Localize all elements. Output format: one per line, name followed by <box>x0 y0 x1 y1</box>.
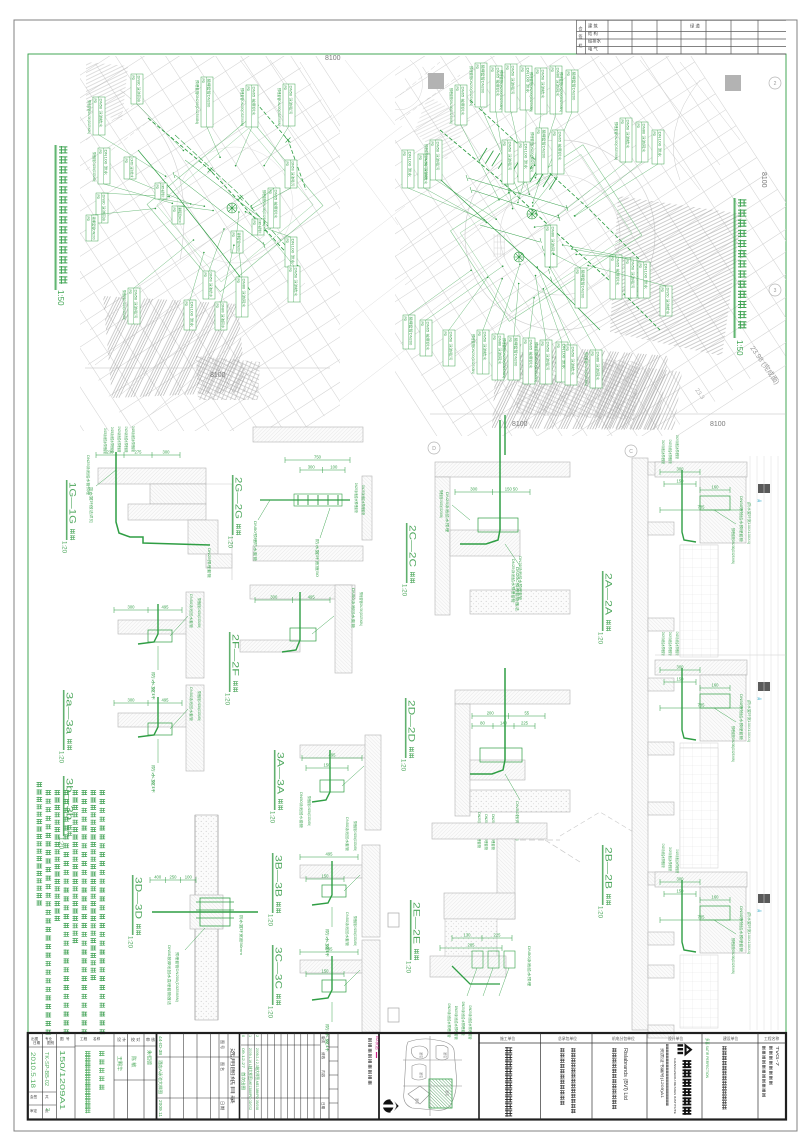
svg-text:陈 敏: 陈 敏 <box>130 1056 137 1067</box>
svg-text:DN100 泄水: DN100 泄水 <box>407 152 412 179</box>
svg-text:8100: 8100 <box>325 55 341 62</box>
svg-text:DN50 泳池给水: DN50 泳池给水 <box>208 273 213 299</box>
svg-text:495: 495 <box>162 698 170 703</box>
svg-text:预埋套管DN200(D325X8N): 预埋套管DN200(D325X8N) <box>731 726 736 762</box>
svg-text:300: 300 <box>128 698 136 703</box>
svg-text:DN25泳池给水预埋套管: DN25泳池给水预埋套管 <box>675 849 680 873</box>
svg-text:200: 200 <box>487 711 495 716</box>
svg-text:DN50泳池给水预埋套管: DN50泳池给水预埋套管 <box>739 906 744 953</box>
svg-text:DN50泳池回水套管: DN50泳池回水套管 <box>345 817 350 852</box>
svg-text:日期: 日期 <box>33 1040 41 1045</box>
svg-text:DN50 泳池给水: DN50 泳池给水 <box>570 347 575 377</box>
svg-text:PD: PD <box>285 239 289 244</box>
svg-text:PD: PD <box>552 132 556 137</box>
svg-text:预埋套管DN200(D325X8N): 预埋套管DN200(D325X8N) <box>195 80 200 124</box>
svg-text:图 名: 图 名 <box>220 1062 226 1071</box>
svg-text:2: 2 <box>774 81 777 87</box>
svg-text:DN25泳池给水预埋套管: DN25泳池给水预埋套管 <box>124 427 129 453</box>
svg-text:PD: PD <box>545 227 549 232</box>
svg-text:预埋套管DN200(D325X8N): 预埋套管DN200(D325X8N) <box>731 528 736 564</box>
svg-text:2B—2B: 2B—2B <box>604 847 614 889</box>
svg-text:DN100 泄水: DN100 泄水 <box>103 150 108 177</box>
svg-text:工程名称: 工程名称 <box>764 1036 779 1041</box>
svg-text:预埋套管DN200(D325X8N): 预埋套管DN200(D325X8N) <box>353 916 358 946</box>
svg-text:1:20: 1:20 <box>405 961 412 974</box>
svg-text:2: 2 <box>255 1035 259 1037</box>
svg-text:防水翼环: 防水翼环 <box>151 672 156 701</box>
svg-text:300: 300 <box>677 665 685 670</box>
svg-text:PD: PD <box>475 65 479 70</box>
svg-text:预埋套管DN200(D325X8N): 预埋套管DN200(D325X8N) <box>122 290 127 320</box>
svg-text:DN25泳池给水预埋套管: DN25泳池给水预埋套管 <box>131 426 136 452</box>
svg-text:酒店A泳池大样图: 酒店A泳池大样图 <box>157 1060 164 1094</box>
svg-text:DN50 泳池吸污: DN50 泳池吸污 <box>507 142 512 172</box>
svg-text:DN50 泳池吸污: DN50 泳池吸污 <box>288 86 293 116</box>
svg-text:DN25泳池给水预埋套管: DN25泳池给水预埋套管 <box>468 1006 473 1041</box>
svg-text:预埋套管DN200(D325X8N): 预埋套管DN200(D325X8N) <box>471 334 476 374</box>
svg-text:GUANGZHOU DESIGN INSTITUTE: GUANGZHOU DESIGN INSTITUTE <box>673 1058 677 1114</box>
svg-text:PD: PD <box>172 208 176 213</box>
svg-text:PD: PD <box>556 344 560 349</box>
svg-text:1G—1G: 1G—1G <box>68 482 78 524</box>
svg-text:DN50按摩池回水直埋套管做法: DN50按摩池回水直埋套管做法 <box>167 945 172 1006</box>
svg-text:DN80 泳池回水: DN80 泳池回水 <box>641 124 646 154</box>
svg-text:2009.2.4 2,3轴大样图,ME1389/PD 05/: 2009.2.4 2,3轴大样图,ME1389/PD 05/008 <box>255 1048 260 1110</box>
svg-text:预埋套管DN200: 预埋套管DN200 <box>480 65 485 94</box>
svg-text:PD: PD <box>523 340 527 345</box>
svg-text:DN25预埋套管: DN25预埋套管 <box>207 548 212 579</box>
svg-text:PD: PD <box>430 142 434 147</box>
svg-text:495: 495 <box>326 852 334 857</box>
svg-text:DN25泳池给水预埋套管: DN25泳池给水预埋套管 <box>117 426 122 452</box>
svg-text:785: 785 <box>698 915 706 920</box>
svg-text:DN50 泳池吸污: DN50 泳池吸污 <box>290 162 295 188</box>
svg-text:预埋套管DN200(D325X8N): 预埋套管DN200(D325X8N) <box>449 88 454 124</box>
svg-text:工程: 工程 <box>80 1036 88 1041</box>
svg-text:DN50泳池给水预埋套管: DN50泳池给水预埋套管 <box>739 694 744 741</box>
svg-text:100: 100 <box>330 465 338 470</box>
svg-text:DN50泳池回水套管: DN50泳池回水套管 <box>189 594 194 629</box>
svg-text:预埋套管DN200(D325X8N): 预埋套管DN200(D325X8N) <box>359 592 364 626</box>
svg-text:DN50 泳池给水: DN50 泳池给水 <box>98 99 103 129</box>
svg-text:DN80 泳池回水: DN80 泳池回水 <box>136 76 141 104</box>
svg-text:300: 300 <box>677 467 685 472</box>
svg-text:资质证书编号(1209)A1: 资质证书编号(1209)A1 <box>660 1048 665 1098</box>
svg-text:会: 会 <box>579 25 583 31</box>
svg-text:预埋套管DN200(D325X8N): 预埋套管DN200(D325X8N) <box>530 132 535 172</box>
svg-text:防水翼环: 防水翼环 <box>325 929 330 958</box>
svg-text:预埋套管DN200: 预埋套管DN200 <box>571 72 576 101</box>
svg-text:王赐华: 王赐华 <box>116 1056 123 1071</box>
svg-text:160: 160 <box>712 895 720 900</box>
svg-text:44-ID-38: 44-ID-38 <box>158 1036 163 1056</box>
svg-text:250: 250 <box>170 875 178 880</box>
svg-text:选用图纸目录: 选用图纸目录 <box>229 1048 236 1105</box>
svg-text:DN50泳池回水套管: DN50泳池回水套管 <box>345 912 350 947</box>
svg-text:预埋套管DN200: 预埋套管DN200 <box>513 338 518 367</box>
svg-text:DN50 泳池吸污: DN50 泳池吸污 <box>510 66 515 96</box>
svg-text:2009.11: 2009.11 <box>158 1100 163 1118</box>
svg-text:名称: 名称 <box>93 1036 101 1041</box>
svg-text:DN25泳池给水预埋套管: DN25泳池给水预埋套管 <box>361 485 366 516</box>
svg-text:预埋套管DN200(D325X8N): 预埋套管DN200(D325X8N) <box>469 66 474 106</box>
svg-text:495: 495 <box>308 595 316 600</box>
svg-text:PD: PD <box>505 66 509 71</box>
svg-text:DN25泳池给水预埋套管: DN25泳池给水预埋套管 <box>110 427 115 453</box>
svg-text:酒店: 酒店 <box>415 1098 420 1104</box>
svg-text:DN50泳池给水预埋套管: DN50泳池给水预埋套管 <box>739 496 744 543</box>
svg-text:PD: PD <box>96 195 100 200</box>
svg-text:预埋套管DN200(D325X8N): 预埋套管DN200(D325X8N) <box>277 88 282 126</box>
svg-text:Rislabrands (BVI) Ltd: Rislabrands (BVI) Ltd <box>622 1048 628 1100</box>
svg-text:施工单位: 施工单位 <box>500 1036 515 1041</box>
svg-text:PD: PD <box>283 86 287 91</box>
svg-text:400: 400 <box>154 875 162 880</box>
svg-text:预埋套管DN200(D325X8N): 预埋套管DN200(D325X8N) <box>731 938 736 974</box>
svg-text:DN25泳池给水预埋套管: DN25泳池给水预埋套管 <box>668 440 673 464</box>
svg-text:PD: PD <box>575 270 579 275</box>
svg-text:预埋套管DN200(D325X8N): 预埋套管DN200(D325X8N) <box>175 952 180 1002</box>
svg-text:1:20: 1:20 <box>401 584 408 597</box>
svg-text:PD: PD <box>288 268 292 273</box>
svg-text:预埋套管DN200(D325X8N): 预埋套管DN200(D325X8N) <box>424 144 429 180</box>
svg-text:DN25泳池给水预埋套管: DN25泳池给水预埋套管 <box>675 632 680 656</box>
svg-text:预埋套管DN200(D325X8N): 预埋套管DN200(D325X8N) <box>353 821 358 851</box>
svg-text:会签: 会签 <box>30 1094 38 1099</box>
svg-text:防水翼环做法详见: 防水翼环做法详见 <box>89 487 94 524</box>
svg-text:D: D <box>432 446 436 452</box>
svg-text:PD: PD <box>93 99 97 104</box>
svg-text:PD: PD <box>420 322 424 327</box>
svg-text:150: 150 <box>322 874 330 879</box>
svg-text:酒店: 酒店 <box>445 1090 450 1096</box>
svg-text:3b—3b: 3b—3b <box>65 778 75 820</box>
svg-text:设计单位: 设计单位 <box>668 1036 683 1041</box>
svg-text:PD: PD <box>536 130 540 135</box>
svg-text:DN50泳池回水套管: DN50泳池回水套管 <box>189 687 194 722</box>
svg-text:PD: PD <box>402 152 406 157</box>
svg-text:日 期: 日 期 <box>220 1101 226 1110</box>
svg-text:预埋套管DN200(D325X8N): 预埋套管DN200(D325X8N) <box>87 100 92 134</box>
svg-text:PD: PD <box>231 233 235 238</box>
svg-text:DN100 泄水: DN100 泄水 <box>657 132 662 159</box>
svg-text:预埋套管DN200(D325X8N): 预埋套管DN200(D325X8N) <box>92 152 97 182</box>
svg-text:机电分包单位: 机电分包单位 <box>612 1036 635 1041</box>
svg-text:DN50 泳池吸污: DN50 泳池吸污 <box>630 260 635 290</box>
svg-text:DN50 泳池给水: DN50 泳池给水 <box>540 70 545 100</box>
svg-text:1:20: 1:20 <box>269 811 276 824</box>
svg-text:PD: PD <box>184 302 188 307</box>
svg-text:225: 225 <box>521 721 529 726</box>
svg-text:3: 3 <box>774 288 777 294</box>
svg-text:(防水翼环宽150X150X4): (防水翼环宽150X150X4) <box>747 700 752 742</box>
svg-text:栏: 栏 <box>579 42 583 48</box>
svg-text:日期: 日期 <box>321 1102 326 1110</box>
svg-text:PD: PD <box>443 332 447 337</box>
svg-text:预埋套管DN200(D325X8N): 预埋套管DN200(D325X8N) <box>262 190 267 226</box>
svg-text:8100: 8100 <box>512 421 528 428</box>
svg-text:防水翼环宽度50: 防水翼环宽度50 <box>315 539 320 577</box>
svg-text:预埋套管DN200: 预埋套管DN200 <box>236 233 241 252</box>
svg-text:PD: PD <box>610 257 614 262</box>
svg-text:DN80 泳池回水: DN80 泳池回水 <box>595 352 600 382</box>
svg-text:预埋套管DN200: 预埋套管DN200 <box>408 317 413 346</box>
svg-text:1:20: 1:20 <box>267 914 274 927</box>
svg-text:09.12.27: 09.12.27 <box>241 1048 245 1068</box>
svg-text:300: 300 <box>128 605 136 610</box>
svg-text:2A—2A: 2A—2A <box>604 573 614 615</box>
svg-text:300: 300 <box>677 877 685 882</box>
svg-text:150: 150 <box>677 889 685 894</box>
svg-text:给排水: 给排水 <box>588 38 602 45</box>
svg-text:80: 80 <box>480 721 485 726</box>
svg-text:PD: PD <box>652 132 656 137</box>
svg-text:PD: PD <box>477 332 481 337</box>
svg-text:首次出图: 首次出图 <box>241 1072 246 1090</box>
svg-text:朱祖德: 朱祖德 <box>146 1050 153 1065</box>
svg-text:DN65 按摩供水: DN65 按摩供水 <box>425 322 430 352</box>
svg-text:1:20: 1:20 <box>227 536 234 549</box>
svg-text:TvG-7: TvG-7 <box>775 1046 780 1067</box>
svg-text:建设单位: 建设单位 <box>723 1036 738 1041</box>
svg-text:PD: PD <box>520 68 524 73</box>
svg-text:PD: PD <box>660 288 664 293</box>
svg-text:3b: 3b <box>757 908 762 913</box>
svg-text:PD: PD <box>565 347 569 352</box>
svg-text:DN25泳池给水预埋套管: DN25泳池给水预埋套管 <box>103 428 108 454</box>
svg-text:1: 1 <box>248 1035 252 1037</box>
svg-text:签: 签 <box>579 33 583 39</box>
svg-text:图: 图 <box>60 1037 64 1041</box>
svg-text:DN50 泳池给水: DN50 泳池给水 <box>482 332 487 362</box>
svg-text:1:20: 1:20 <box>597 632 604 645</box>
svg-text:DN25泳池给水预埋套管: DN25泳池给水预埋套管 <box>461 1002 466 1037</box>
svg-text:酒店: 酒店 <box>443 1052 448 1058</box>
svg-text:150/1209A1: 150/1209A1 <box>58 1050 65 1110</box>
svg-text:修改: 修改 <box>321 1052 326 1060</box>
svg-text:PD: PD <box>201 79 205 84</box>
svg-text:总承包单位: 总承包单位 <box>558 1036 577 1041</box>
svg-text:PD: PD <box>550 68 554 73</box>
svg-text:300: 300 <box>163 450 171 455</box>
svg-text:2009.1.16 L轴大样图,ME1388/PD 02/0: 2009.1.16 L轴大样图,ME1388/PD 02/002 <box>248 1048 253 1110</box>
svg-text:PD: PD <box>636 124 640 129</box>
svg-text:PD: PD <box>502 142 506 147</box>
svg-text:140: 140 <box>500 721 508 726</box>
svg-text:2G—2G: 2G—2G <box>234 477 244 519</box>
svg-text:图别: 图别 <box>47 1040 55 1045</box>
svg-text:DN50泳池回水套管: DN50泳池回水套管 <box>299 792 304 829</box>
svg-text:PD: PD <box>86 217 90 222</box>
svg-text:PD: PD <box>566 72 570 77</box>
svg-text:DN50 泳池给水: DN50 泳池给水 <box>129 159 134 179</box>
svg-text:预埋套管DN200(D325X8N): 预埋套管DN200(D325X8N) <box>240 88 245 126</box>
svg-text:DN50 泳池给水: DN50 泳池给水 <box>293 268 298 298</box>
svg-text:DN25泳池给水预埋套管: DN25泳池给水预埋套管 <box>518 556 523 601</box>
svg-text:300: 300 <box>308 465 316 470</box>
svg-text:DN65 按摩供水: DN65 按摩供水 <box>615 257 620 287</box>
svg-text:DN100 泄水: DN100 泄水 <box>290 239 295 266</box>
svg-text:0: 0 <box>241 1035 245 1037</box>
svg-text:285: 285 <box>468 943 476 948</box>
svg-text:预埋套管DN200(D325X8N): 预埋套管DN200(D325X8N) <box>197 598 202 628</box>
svg-text:DN25泳池给水预埋套管: DN25泳池给水预埋套管 <box>661 632 666 656</box>
svg-text:750: 750 <box>314 455 322 460</box>
svg-text:PD: PD <box>490 68 494 73</box>
svg-text:DN65 按摩供水: DN65 按摩供水 <box>257 221 262 234</box>
svg-text:DN80 泳池回水: DN80 泳池回水 <box>497 336 502 366</box>
svg-text:号: 号 <box>66 1036 70 1041</box>
svg-text:1:20: 1:20 <box>127 936 134 949</box>
svg-text:DN50 泳池给水: DN50 泳池给水 <box>665 288 670 316</box>
svg-text:PD: PD <box>590 352 594 357</box>
svg-text:PD: PD <box>252 221 256 226</box>
svg-text:C: C <box>629 449 633 455</box>
svg-text:多喜 SATIR PERFECTION: 多喜 SATIR PERFECTION <box>705 1038 711 1078</box>
svg-text:DN65 按摩供水: DN65 按摩供水 <box>460 87 465 117</box>
svg-text:3C—3C: 3C—3C <box>274 947 284 990</box>
svg-text:130: 130 <box>464 933 472 938</box>
svg-text:DN50 泳池吸污: DN50 泳池吸污 <box>448 332 453 362</box>
svg-text:共: 共 <box>45 1094 49 1099</box>
svg-text:预埋套管DN200(D325X8N): 预埋套管DN200(D325X8N) <box>529 72 534 112</box>
svg-text:PD: PD <box>518 144 522 149</box>
svg-text:PD: PD <box>492 336 496 341</box>
svg-text:3b: 3b <box>757 696 762 701</box>
svg-text:PD: PD <box>540 342 544 347</box>
svg-text:3D—3D: 3D—3D <box>134 877 144 920</box>
svg-text:DN50 泳池吸污: DN50 泳池吸污 <box>133 290 138 320</box>
svg-text:PD: PD <box>215 304 219 309</box>
svg-text:DN100 泄水: DN100 泄水 <box>189 302 194 329</box>
svg-text:1:20: 1:20 <box>224 693 231 706</box>
svg-text:PD: PD <box>203 273 207 278</box>
svg-text:DN25泳池给水预埋套管: DN25泳池给水预埋套管 <box>661 844 666 868</box>
svg-text:DN25泳池给水预埋: DN25泳池给水预埋 <box>445 492 450 533</box>
svg-text:酒店: 酒店 <box>419 1052 424 1058</box>
svg-text:TK-SP-BB-02: TK-SP-BB-02 <box>43 1052 49 1086</box>
svg-text:预埋套管DN200: 预埋套管DN200 <box>91 217 96 240</box>
svg-text:DN50 泳池吸污: DN50 泳池吸污 <box>545 342 550 372</box>
svg-text:2F—2F: 2F—2F <box>231 634 241 677</box>
svg-text:审 核: 审 核 <box>146 1036 155 1042</box>
svg-text:PD: PD <box>508 338 512 343</box>
svg-text:DN25泳池给水预埋套管: DN25泳池给水预埋套管 <box>675 435 680 459</box>
svg-text:PD: PD <box>128 290 132 295</box>
svg-text:495: 495 <box>162 605 170 610</box>
svg-text:1:50: 1:50 <box>56 290 65 306</box>
svg-text:8100: 8100 <box>760 172 767 188</box>
svg-text:PD: PD <box>455 87 459 92</box>
svg-text:DN80 泳池回水: DN80 泳池回水 <box>550 227 555 257</box>
svg-text:DN50 泳池给水: DN50 泳池给水 <box>625 120 630 150</box>
svg-text:PD: PD <box>131 76 135 81</box>
svg-text:预埋套管DN200(D325X8N): 预埋套管DN200(D325X8N) <box>559 72 564 112</box>
svg-text:版次: 版次 <box>321 1036 326 1044</box>
svg-text:DN65 按摩供水: DN65 按摩供水 <box>160 185 165 198</box>
svg-text:DN80 泳池回水: DN80 泳池回水 <box>241 279 246 309</box>
svg-text:300: 300 <box>270 595 278 600</box>
svg-text:预埋套管DN200(D325X8N): 预埋套管DN200(D325X8N) <box>307 796 312 826</box>
svg-text:785: 785 <box>698 505 706 510</box>
svg-text:495: 495 <box>326 947 334 952</box>
svg-text:150 50: 150 50 <box>505 487 518 492</box>
svg-text:DN50 泳池吸污: DN50 泳池吸污 <box>435 142 440 172</box>
svg-text:1:20: 1:20 <box>61 541 68 554</box>
svg-text:785: 785 <box>698 703 706 708</box>
svg-text:PD: PD <box>625 260 629 265</box>
svg-text:1:20: 1:20 <box>400 759 407 772</box>
svg-text:DN65 按摩供水: DN65 按摩供水 <box>273 190 278 220</box>
svg-text:3A—3A: 3A—3A <box>276 752 286 794</box>
svg-text:2010.5.18: 2010.5.18 <box>29 1052 35 1089</box>
svg-text:DN65 按摩供水: DN65 按摩供水 <box>557 132 562 162</box>
svg-text:DN80 泳池回水: DN80 泳池回水 <box>101 195 106 223</box>
svg-text:DN65 按摩供水: DN65 按摩供水 <box>251 87 256 117</box>
svg-text:DN100 泄水: DN100 泄水 <box>643 264 648 291</box>
svg-text:PD: PD <box>124 159 128 164</box>
svg-text:100: 100 <box>185 875 193 880</box>
svg-text:PD: PD <box>155 185 159 190</box>
svg-text:PD: PD <box>535 70 539 75</box>
svg-text:预埋套管DN200(D325X8N): 预埋套管DN200(D325X8N) <box>614 122 619 160</box>
svg-text:预埋套管DN200(D325X8N): 预埋套管DN200(D325X8N) <box>534 342 539 382</box>
svg-text:PD: PD <box>246 87 250 92</box>
svg-text:(防水翼环宽150X150X4): (防水翼环宽150X150X4) <box>747 502 752 544</box>
svg-text:2: 2 <box>44 1108 50 1111</box>
svg-text:8100: 8100 <box>210 372 226 379</box>
svg-text:酒店: 酒店 <box>419 1072 424 1078</box>
svg-text:DN50泳池回水套管: DN50泳池回水套管 <box>351 588 356 629</box>
svg-text:预埋套管DN200(D325X8N): 预埋套管DN200(D325X8N) <box>439 490 444 518</box>
svg-text:DN25泳池给水预埋套管: DN25泳池给水预埋套管 <box>668 632 673 656</box>
svg-text:防水翼环宽度50mm: 防水翼环宽度50mm <box>239 915 244 955</box>
svg-text:225: 225 <box>494 933 502 938</box>
svg-text:300: 300 <box>470 487 478 492</box>
svg-text:PD: PD <box>403 317 407 322</box>
svg-text:150: 150 <box>322 969 330 974</box>
svg-text:PD: PD <box>236 279 240 284</box>
svg-text:1:50: 1:50 <box>735 340 744 356</box>
svg-text:预埋套管DN200: 预埋套管DN200 <box>177 208 182 223</box>
svg-text:预埋套管DN200: 预埋套管DN200 <box>580 270 585 299</box>
svg-text:150: 150 <box>677 479 685 484</box>
svg-text:PD: PD <box>418 156 422 161</box>
svg-text:DN100 泄水: DN100 泄水 <box>523 144 528 171</box>
svg-text:预埋套管DN200(D325X8N): 预埋套管DN200(D325X8N) <box>502 338 507 378</box>
svg-text:1:20: 1:20 <box>597 906 604 919</box>
svg-text:图 号: 图 号 <box>220 1040 226 1049</box>
svg-text:结 构: 结 构 <box>588 30 598 37</box>
svg-text:预埋套管DN200: 预埋套管DN200 <box>541 130 546 159</box>
svg-text:PD: PD <box>638 264 642 269</box>
svg-text:3B—3B: 3B—3B <box>274 855 284 897</box>
svg-text:DN80 泳池回水: DN80 泳池回水 <box>220 304 225 330</box>
svg-text:审定: 审定 <box>30 1108 38 1113</box>
svg-text:预埋套管DN200(D325X8N): 预埋套管DN200(D325X8N) <box>584 352 589 386</box>
svg-text:预埋套管DN200(D325X8N): 预埋套管DN200(D325X8N) <box>197 691 202 721</box>
svg-text:PD: PD <box>620 120 624 125</box>
svg-text:DN25泳池给水预埋套管: DN25泳池给水预埋套管 <box>668 847 673 871</box>
svg-text:DN25泳池给水预埋套管: DN25泳池给水预埋套管 <box>354 483 359 514</box>
svg-text:DN50泳池给水预埋: DN50泳池给水预埋 <box>527 946 532 987</box>
svg-text:PD: PD <box>98 150 102 155</box>
svg-text:(防水翼环宽150X150X4): (防水翼环宽150X150X4) <box>747 912 752 954</box>
svg-text:3a—3a: 3a—3a <box>65 692 75 734</box>
svg-text:1:20: 1:20 <box>58 751 65 764</box>
svg-text:160: 160 <box>712 485 720 490</box>
svg-text:55: 55 <box>524 711 529 716</box>
